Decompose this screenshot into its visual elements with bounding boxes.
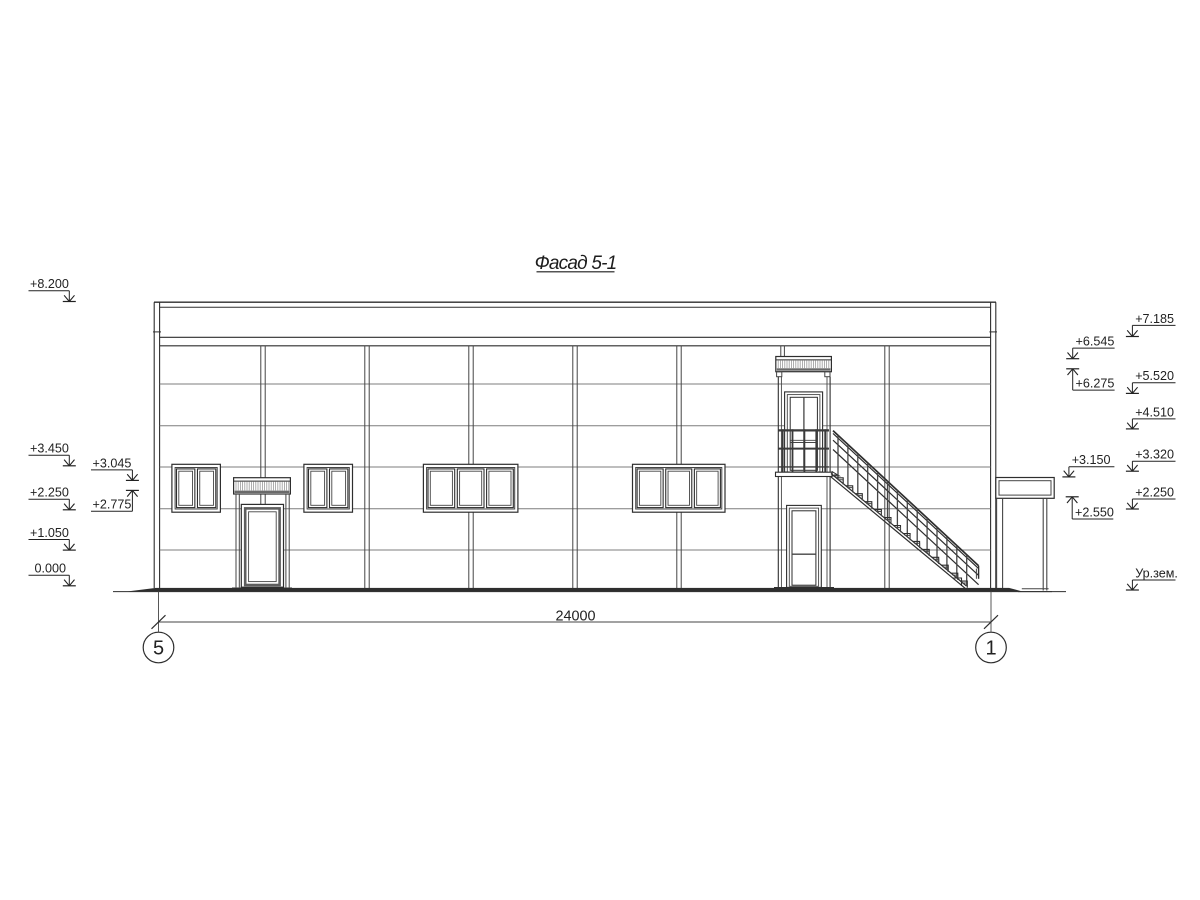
svg-text:+6.275: +6.275 — [1076, 377, 1115, 391]
svg-text:0.000: 0.000 — [35, 562, 67, 576]
svg-text:+1.050: +1.050 — [30, 526, 69, 540]
svg-text:+2.250: +2.250 — [30, 486, 69, 500]
svg-text:+3.045: +3.045 — [93, 456, 132, 470]
svg-text:+3.320: +3.320 — [1135, 448, 1174, 462]
svg-text:Ур.зем.: Ур.зем. — [1135, 566, 1178, 580]
svg-text:+3.150: +3.150 — [1072, 453, 1111, 467]
svg-text:+3.450: +3.450 — [30, 442, 69, 456]
svg-text:Фасад 5-1: Фасад 5-1 — [535, 253, 617, 274]
svg-text:+8.200: +8.200 — [30, 277, 69, 291]
svg-text:+2.250: +2.250 — [1135, 485, 1174, 499]
svg-text:5: 5 — [153, 638, 164, 660]
svg-text:+4.510: +4.510 — [1135, 405, 1174, 419]
svg-text:1: 1 — [985, 638, 996, 660]
svg-text:+6.545: +6.545 — [1076, 335, 1115, 349]
svg-text:+2.550: +2.550 — [1075, 505, 1114, 519]
svg-text:+5.520: +5.520 — [1135, 369, 1174, 383]
svg-text:+2.775: +2.775 — [93, 498, 132, 512]
svg-text:24000: 24000 — [555, 608, 595, 624]
svg-text:+7.185: +7.185 — [1135, 312, 1174, 326]
